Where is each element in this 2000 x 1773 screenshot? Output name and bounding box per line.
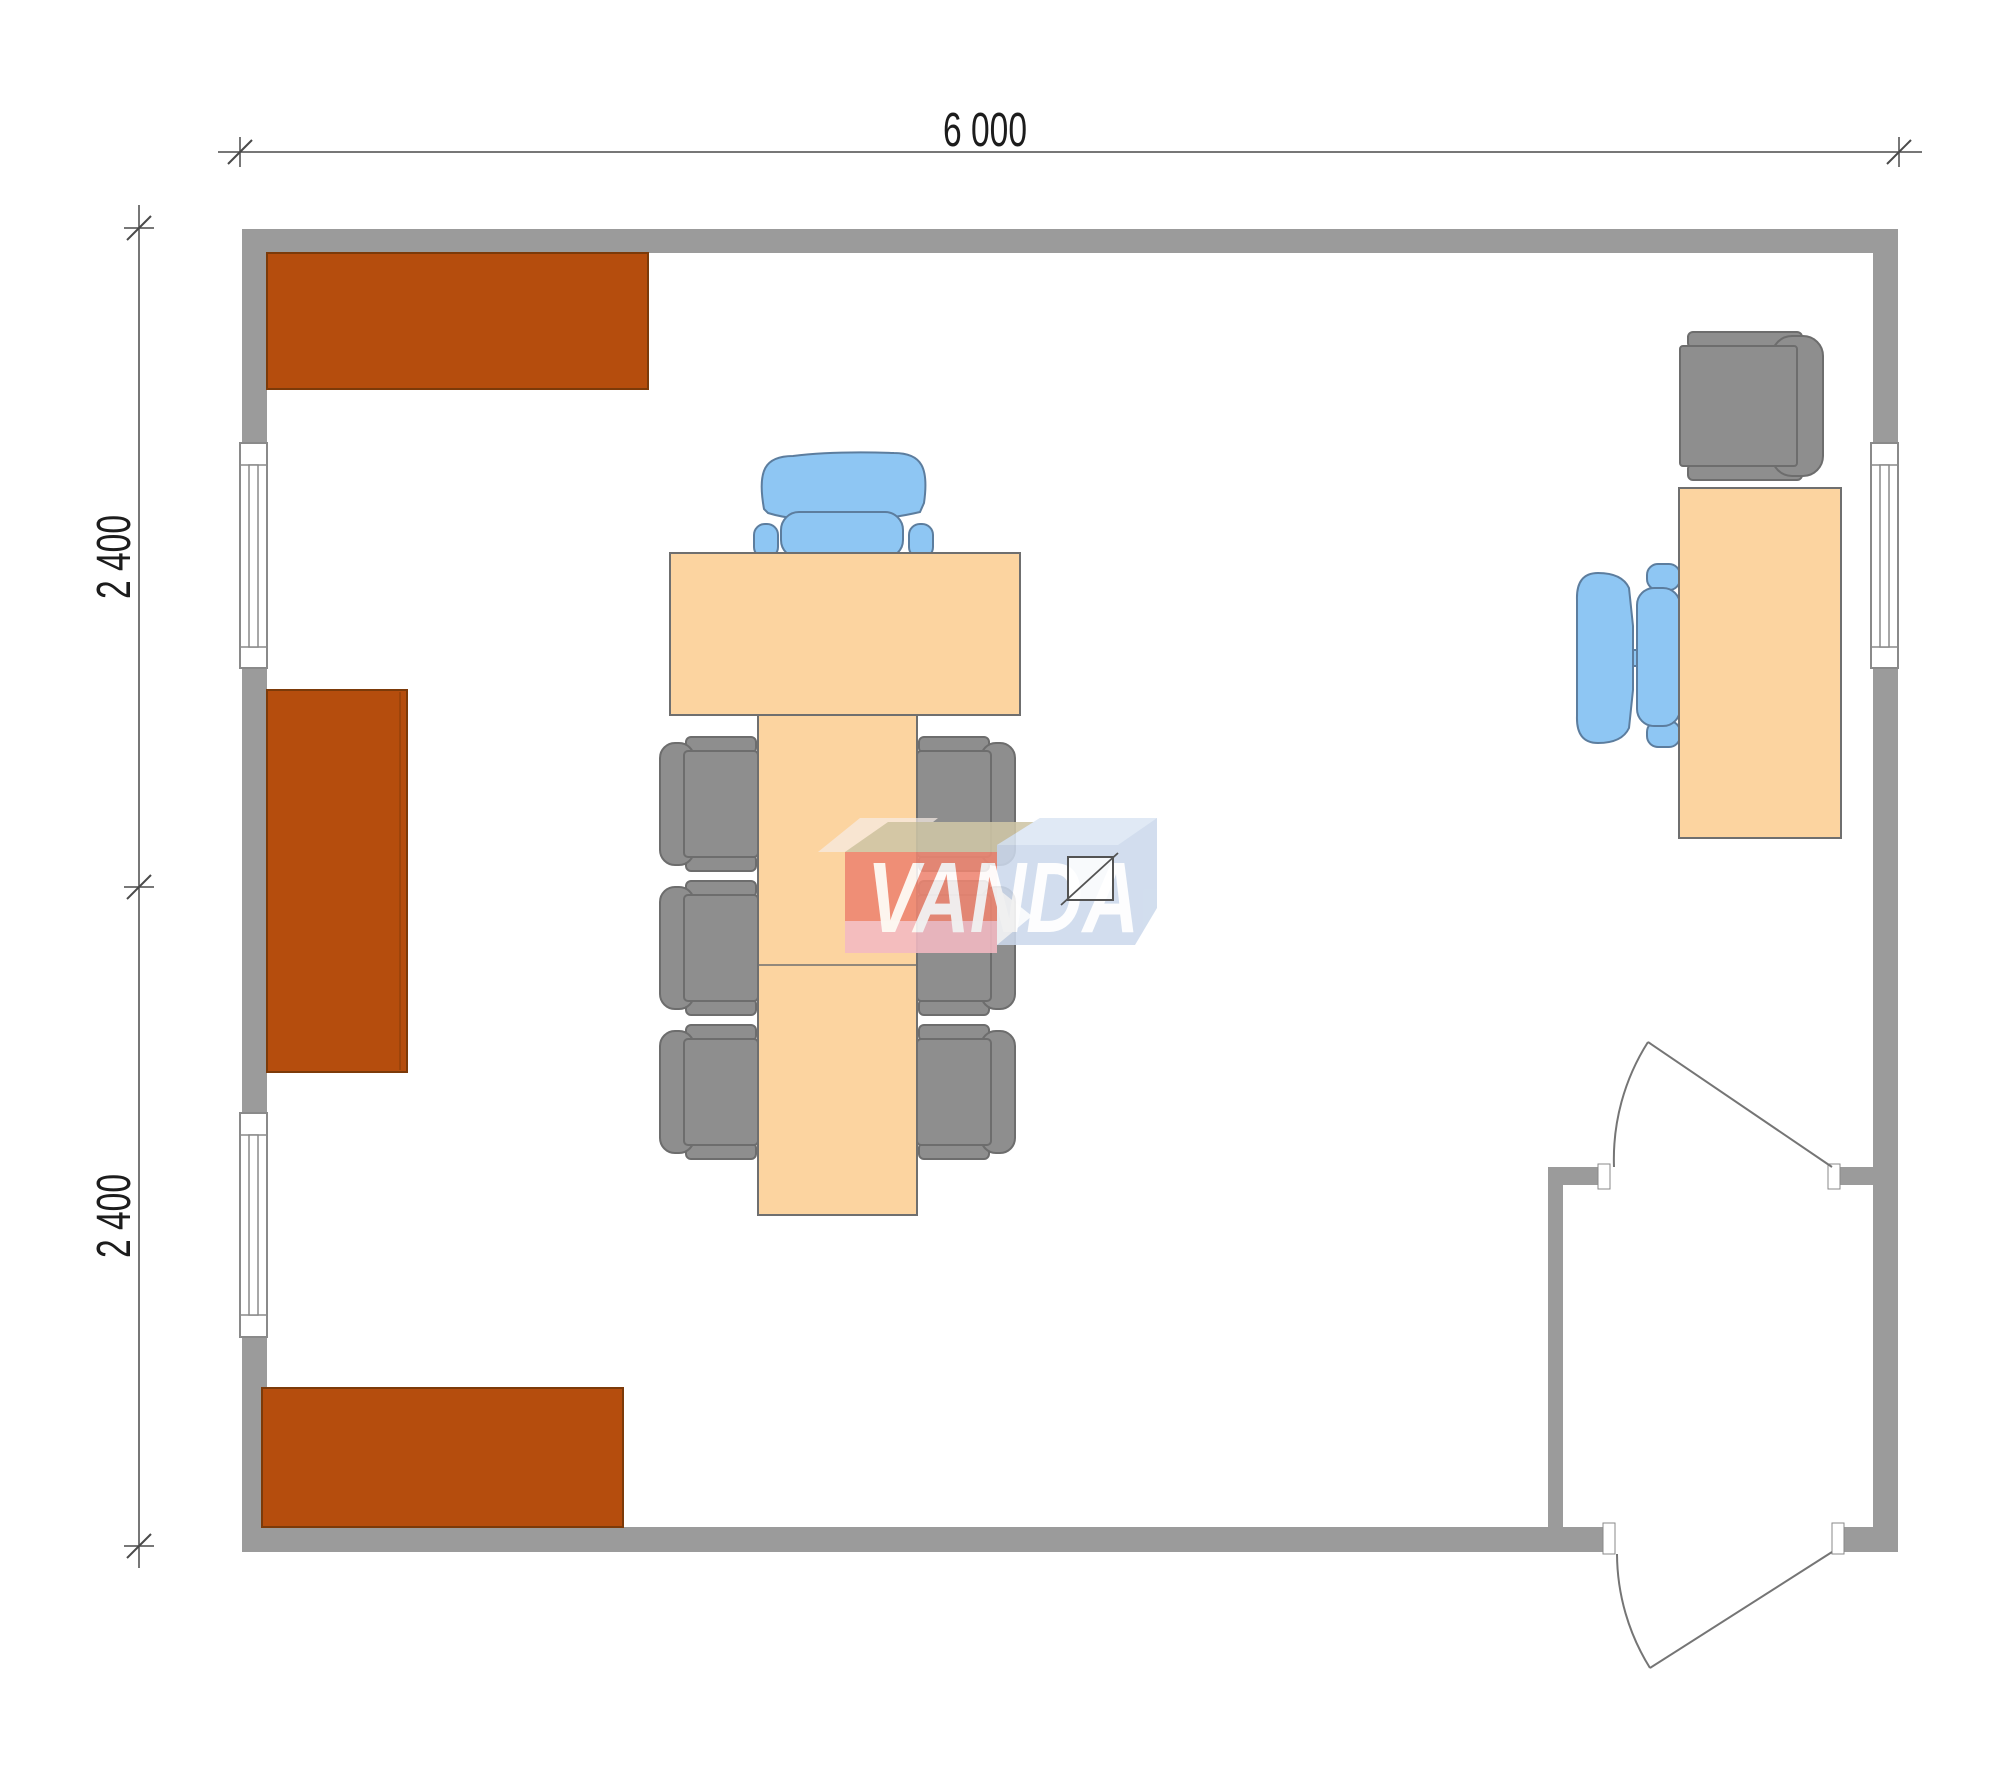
door-jamb — [1832, 1523, 1844, 1554]
cabinet-bottom — [262, 1388, 623, 1527]
door-leaf — [1648, 1042, 1832, 1167]
chair-armrest — [1647, 564, 1680, 590]
wall-bottom-right-segment — [1844, 1527, 1898, 1552]
wall-left — [242, 229, 267, 1552]
meeting-chair-left-2 — [660, 881, 758, 1015]
floor-plan-canvas: 6 000 2 400 2 400 — [0, 0, 2000, 1773]
chair-seat — [917, 1039, 991, 1145]
storage-cabinets — [262, 253, 648, 1527]
door-interior — [1598, 1042, 1840, 1189]
meeting-chair-right-3 — [917, 1025, 1015, 1159]
door-swing-arc — [1617, 1554, 1650, 1668]
chair-seat — [781, 512, 903, 558]
door-jamb — [1828, 1164, 1840, 1189]
doors — [1598, 1042, 1844, 1668]
door-jamb — [1598, 1164, 1610, 1189]
dimension-label-depth-upper: 2 400 — [88, 515, 141, 599]
floor-plan-drawing: 6 000 2 400 2 400 — [0, 0, 2000, 1773]
chair-seat — [684, 751, 758, 857]
window-glazing — [249, 1135, 258, 1315]
chair-seat — [1637, 588, 1680, 726]
chair-backrest — [762, 452, 926, 520]
chair-seat — [1680, 346, 1797, 466]
meeting-chair-left-3 — [660, 1025, 758, 1159]
meeting-chair-left-1 — [660, 737, 758, 871]
window-glazing — [1880, 465, 1889, 647]
dimension-label-depth-lower: 2 400 — [88, 1174, 141, 1258]
cabinet-middle — [267, 690, 407, 1072]
head-chair-blue — [754, 452, 933, 558]
wall-top — [242, 229, 1898, 253]
wall-vestibule-stub-right — [1840, 1167, 1873, 1185]
chair-seat — [684, 1039, 758, 1145]
watermark-square-icon — [1061, 853, 1118, 905]
desk-area — [1577, 332, 1841, 838]
wall-vestibule-stub-left — [1548, 1167, 1598, 1185]
dimension-label-width: 6 000 — [943, 104, 1027, 157]
window-left-lower — [240, 1113, 267, 1337]
window-right — [1871, 443, 1898, 668]
wall-vestibule-partition — [1548, 1185, 1563, 1527]
wall-right — [1873, 229, 1898, 1552]
wall-bottom-left-segment — [242, 1527, 1603, 1552]
door-jamb — [1603, 1523, 1615, 1554]
chair-seat — [684, 895, 758, 1001]
door-exterior — [1603, 1523, 1844, 1668]
vanda-watermark: VANDA — [818, 818, 1157, 954]
armchair-gray — [1680, 332, 1823, 480]
meeting-table-head — [670, 553, 1020, 715]
cabinet-top — [267, 253, 648, 389]
door-swing-arc — [1614, 1042, 1648, 1167]
door-leaf — [1650, 1552, 1832, 1668]
task-chair-blue — [1577, 564, 1680, 747]
chair-backrest — [1577, 573, 1633, 743]
desk — [1679, 488, 1841, 838]
window-left-upper — [240, 443, 267, 668]
window-glazing — [249, 465, 258, 647]
